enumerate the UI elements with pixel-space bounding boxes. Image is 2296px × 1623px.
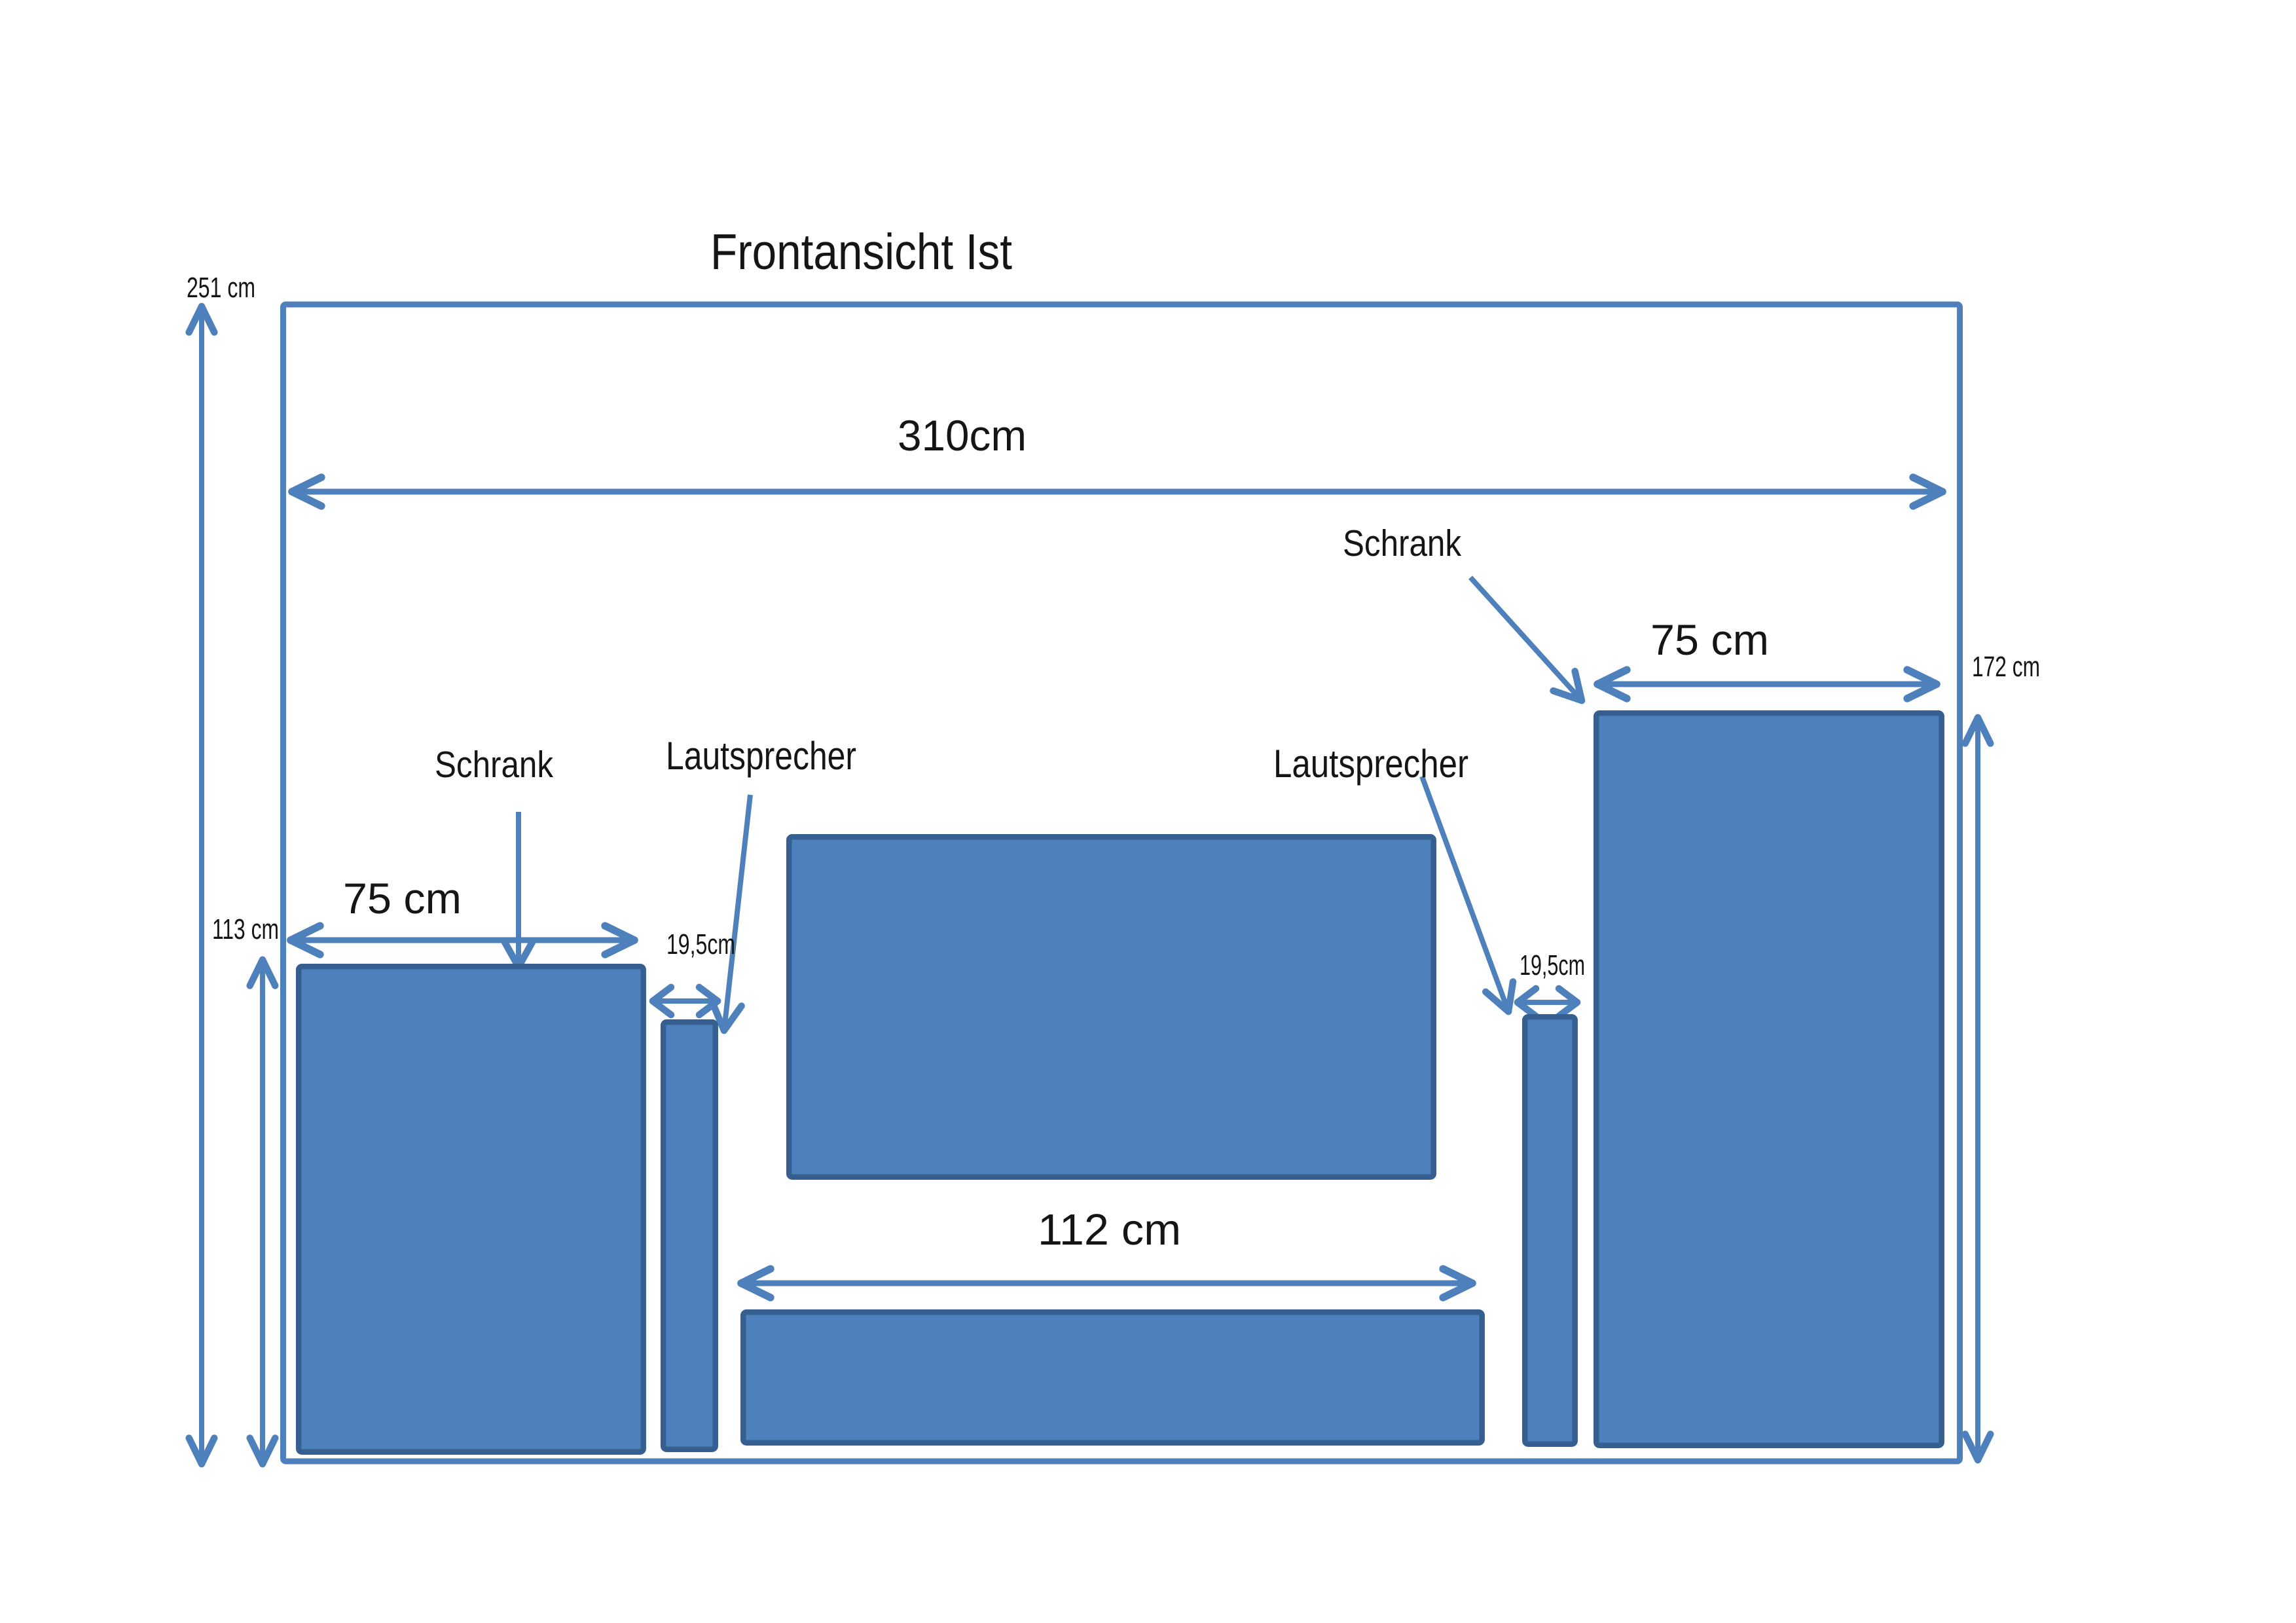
svg-text:Schrank: Schrank	[1343, 522, 1461, 564]
svg-text:Frontansicht Ist: Frontansicht Ist	[710, 224, 1012, 280]
svg-text:112 cm: 112 cm	[1038, 1205, 1181, 1254]
svg-text:310cm: 310cm	[898, 411, 1027, 460]
svg-text:172 cm: 172 cm	[1972, 651, 2040, 683]
svg-text:Lautsprecher: Lautsprecher	[1273, 742, 1468, 786]
svg-text:75 cm: 75 cm	[1650, 615, 1769, 664]
svg-text:251 cm: 251 cm	[187, 272, 255, 304]
svg-text:Schrank: Schrank	[435, 744, 553, 786]
svg-text:Lautsprecher: Lautsprecher	[666, 734, 856, 778]
svg-text:75 cm: 75 cm	[343, 874, 462, 922]
svg-text:19,5cm: 19,5cm	[666, 928, 735, 960]
svg-text:113 cm: 113 cm	[212, 913, 279, 945]
svg-text:19,5cm: 19,5cm	[1520, 949, 1585, 981]
